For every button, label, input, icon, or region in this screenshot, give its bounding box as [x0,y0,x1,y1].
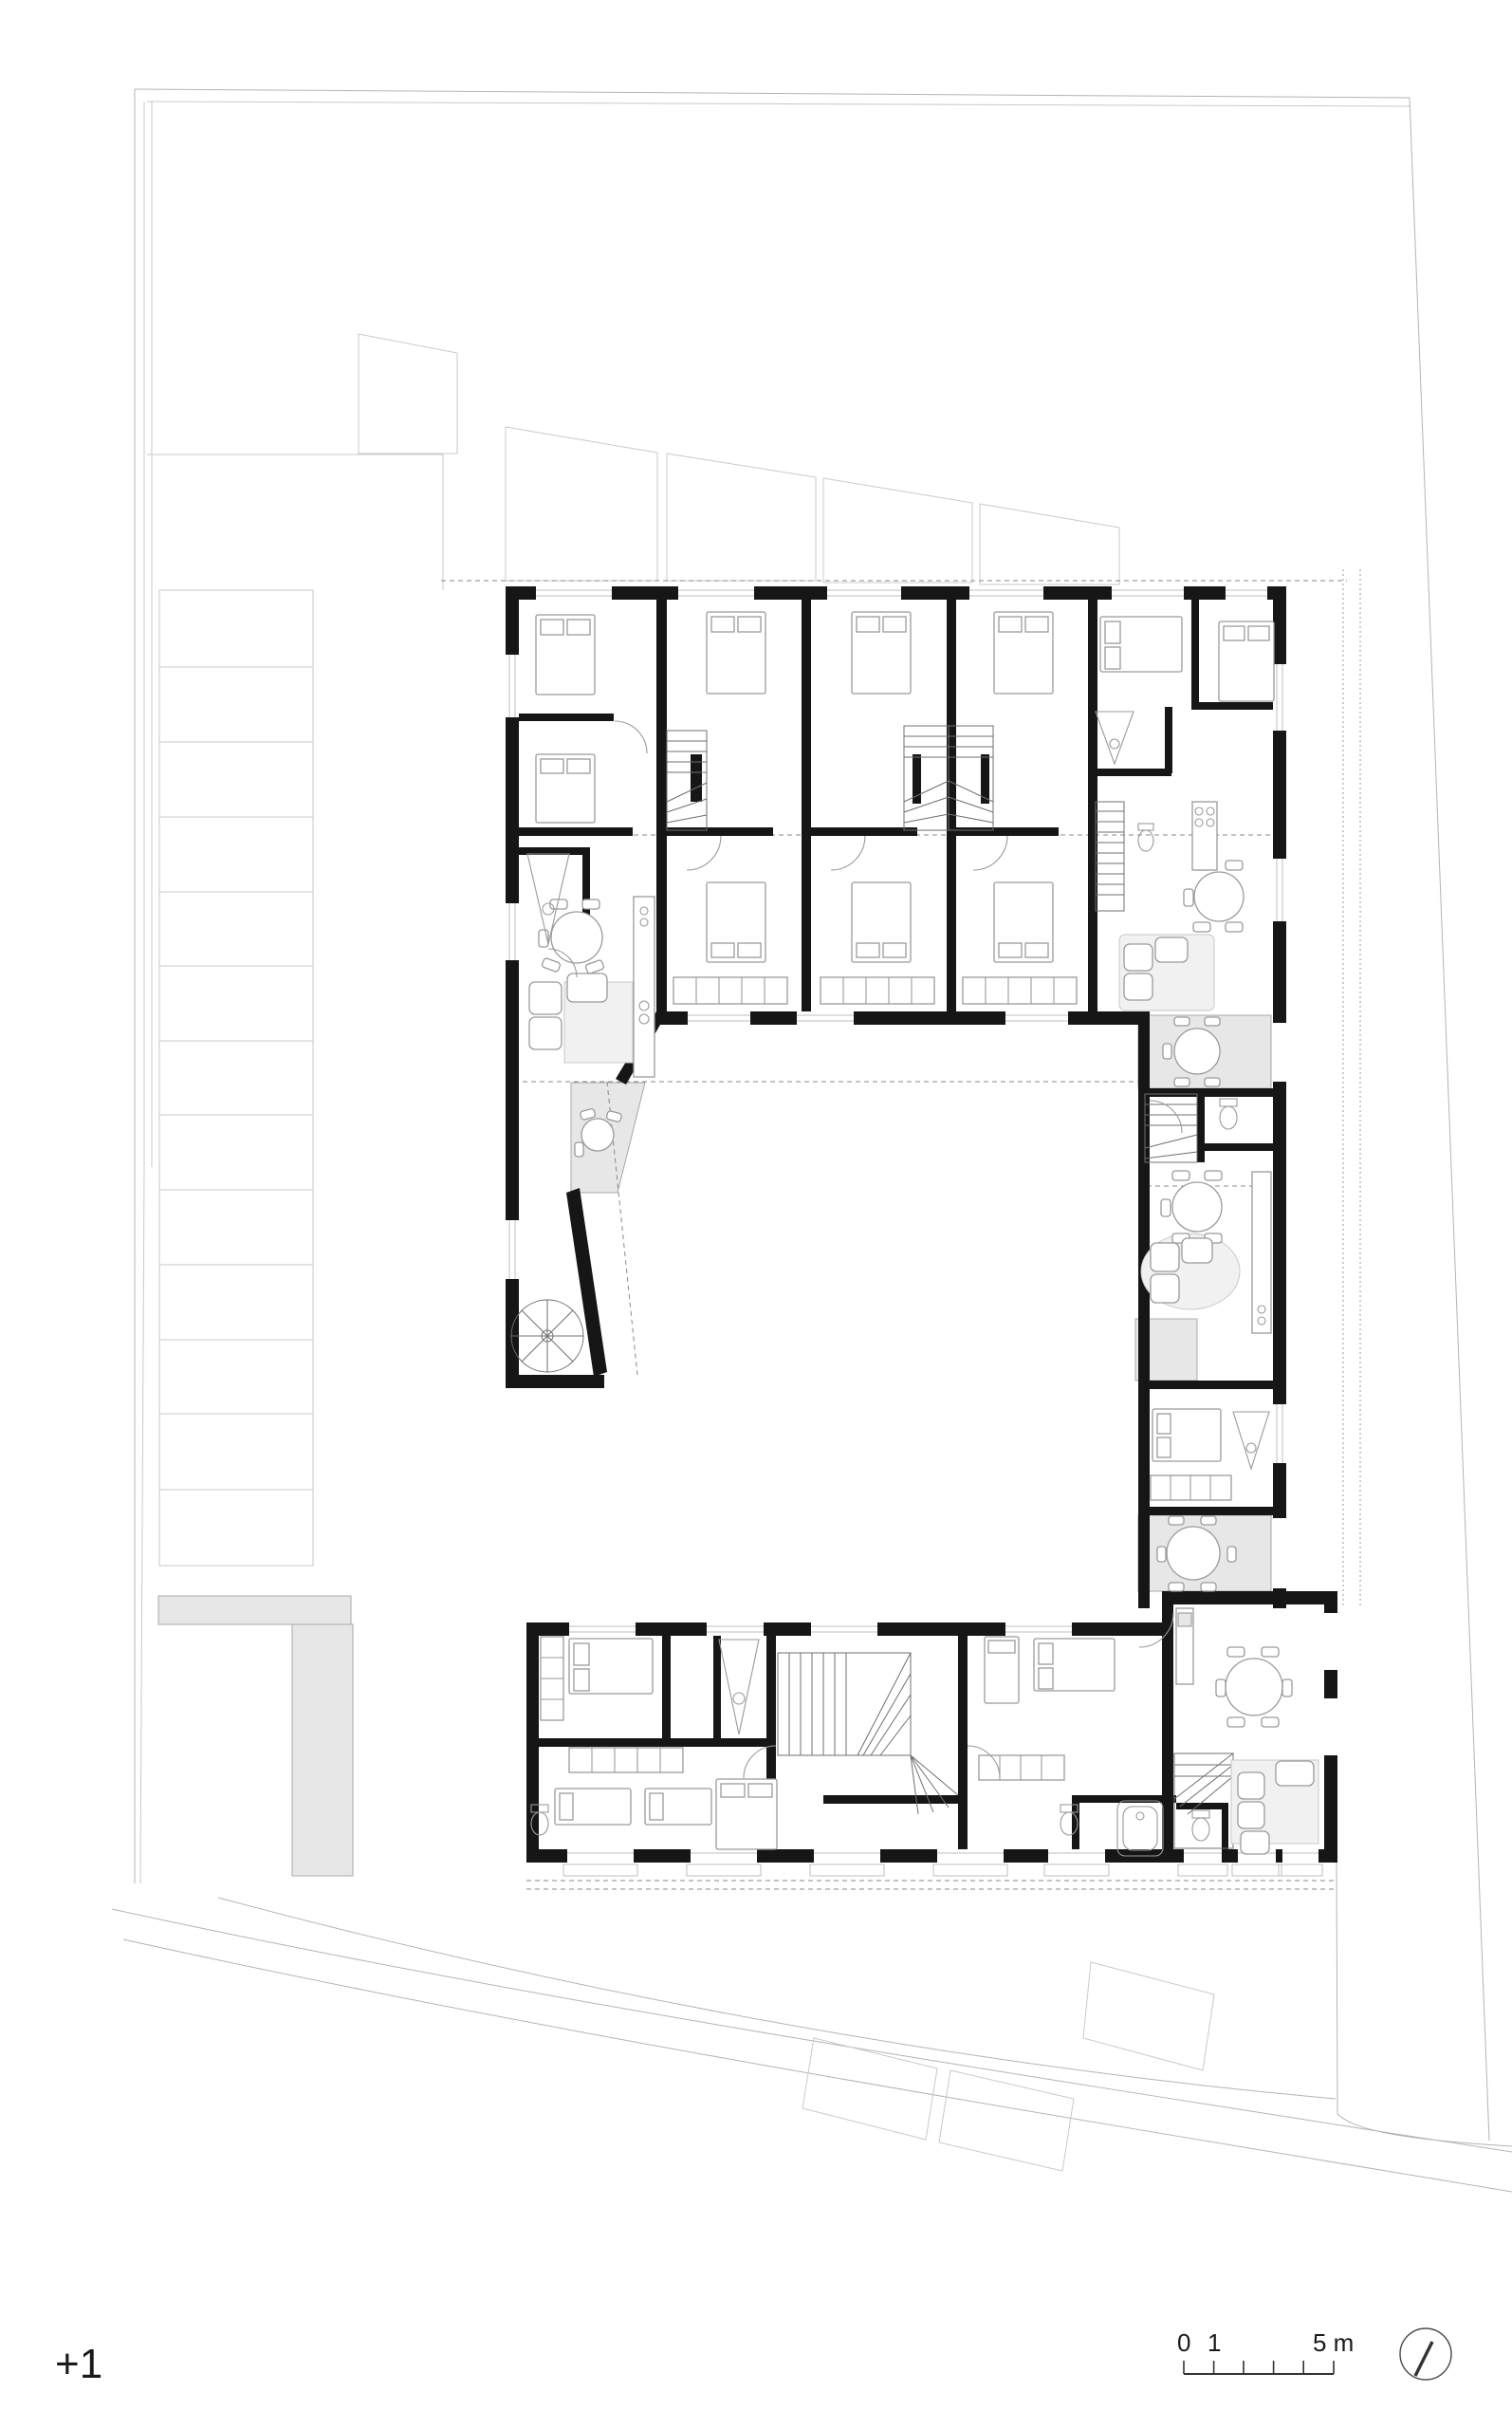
floor-label: +1 [55,2341,102,2387]
bathtub-icon [1117,1801,1163,1856]
stair-bottom-wing [778,1653,958,1814]
annotations: +1 0 1 5 m [55,2328,1451,2387]
scale-one: 1 [1208,2328,1221,2357]
scale-five: 5 m [1313,2328,1354,2357]
stair-straight [1096,802,1124,911]
terrace-tables [575,1017,1236,1591]
street-lines [112,1898,1512,2192]
stair-spiral [511,1300,583,1372]
walkway [158,1596,353,1876]
garden-plots-bottom [802,1962,1214,2171]
garden-plots-top [359,334,1119,584]
furniture [527,612,1318,1856]
north-indicator-icon [1400,2328,1451,2380]
floor-plan-canvas: +1 0 1 5 m [0,0,1512,2429]
door-arcs [548,721,1182,1778]
scale-zero: 0 [1177,2328,1190,2357]
stair-winder-rightwing [1145,1094,1197,1162]
scale-bar: 0 1 5 m [1177,2328,1354,2374]
allotment-strips [159,590,313,1566]
